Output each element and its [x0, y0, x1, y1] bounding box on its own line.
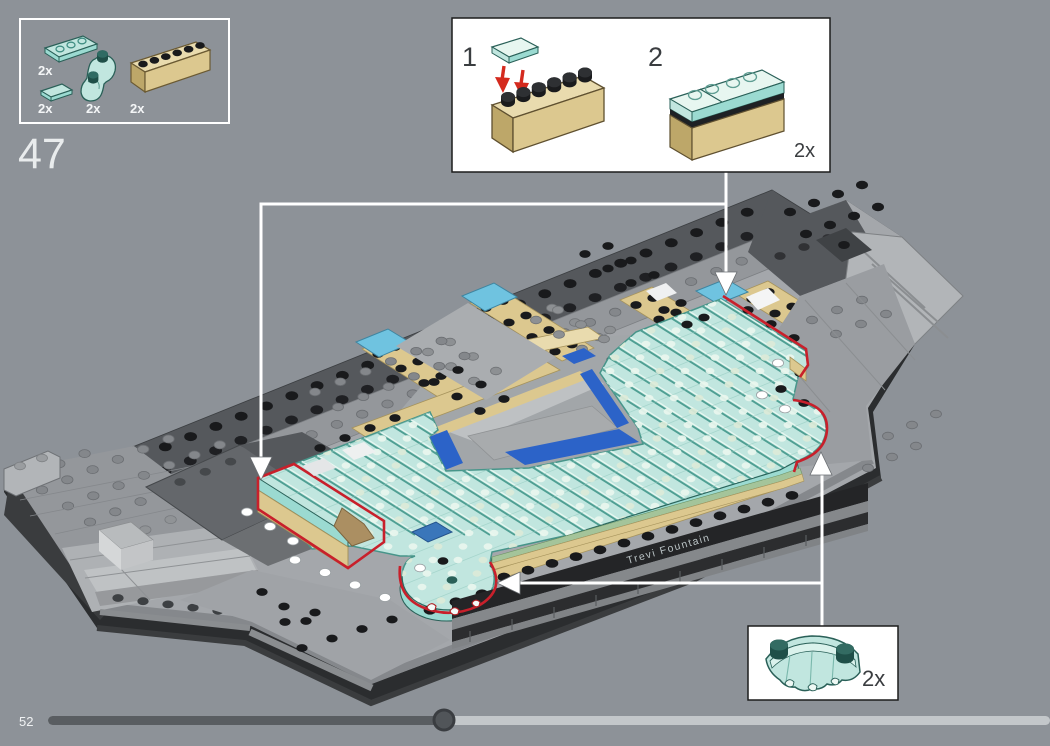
svg-text:2x: 2x: [862, 666, 885, 691]
svg-text:1: 1: [462, 42, 477, 72]
svg-text:47: 47: [18, 130, 66, 178]
svg-text:2x: 2x: [794, 140, 815, 162]
svg-text:2x: 2x: [130, 101, 145, 116]
svg-text:2x: 2x: [38, 101, 53, 116]
svg-text:2x: 2x: [86, 101, 101, 116]
svg-text:2x: 2x: [38, 63, 53, 78]
svg-text:2: 2: [648, 42, 663, 72]
svg-text:52: 52: [19, 714, 33, 729]
